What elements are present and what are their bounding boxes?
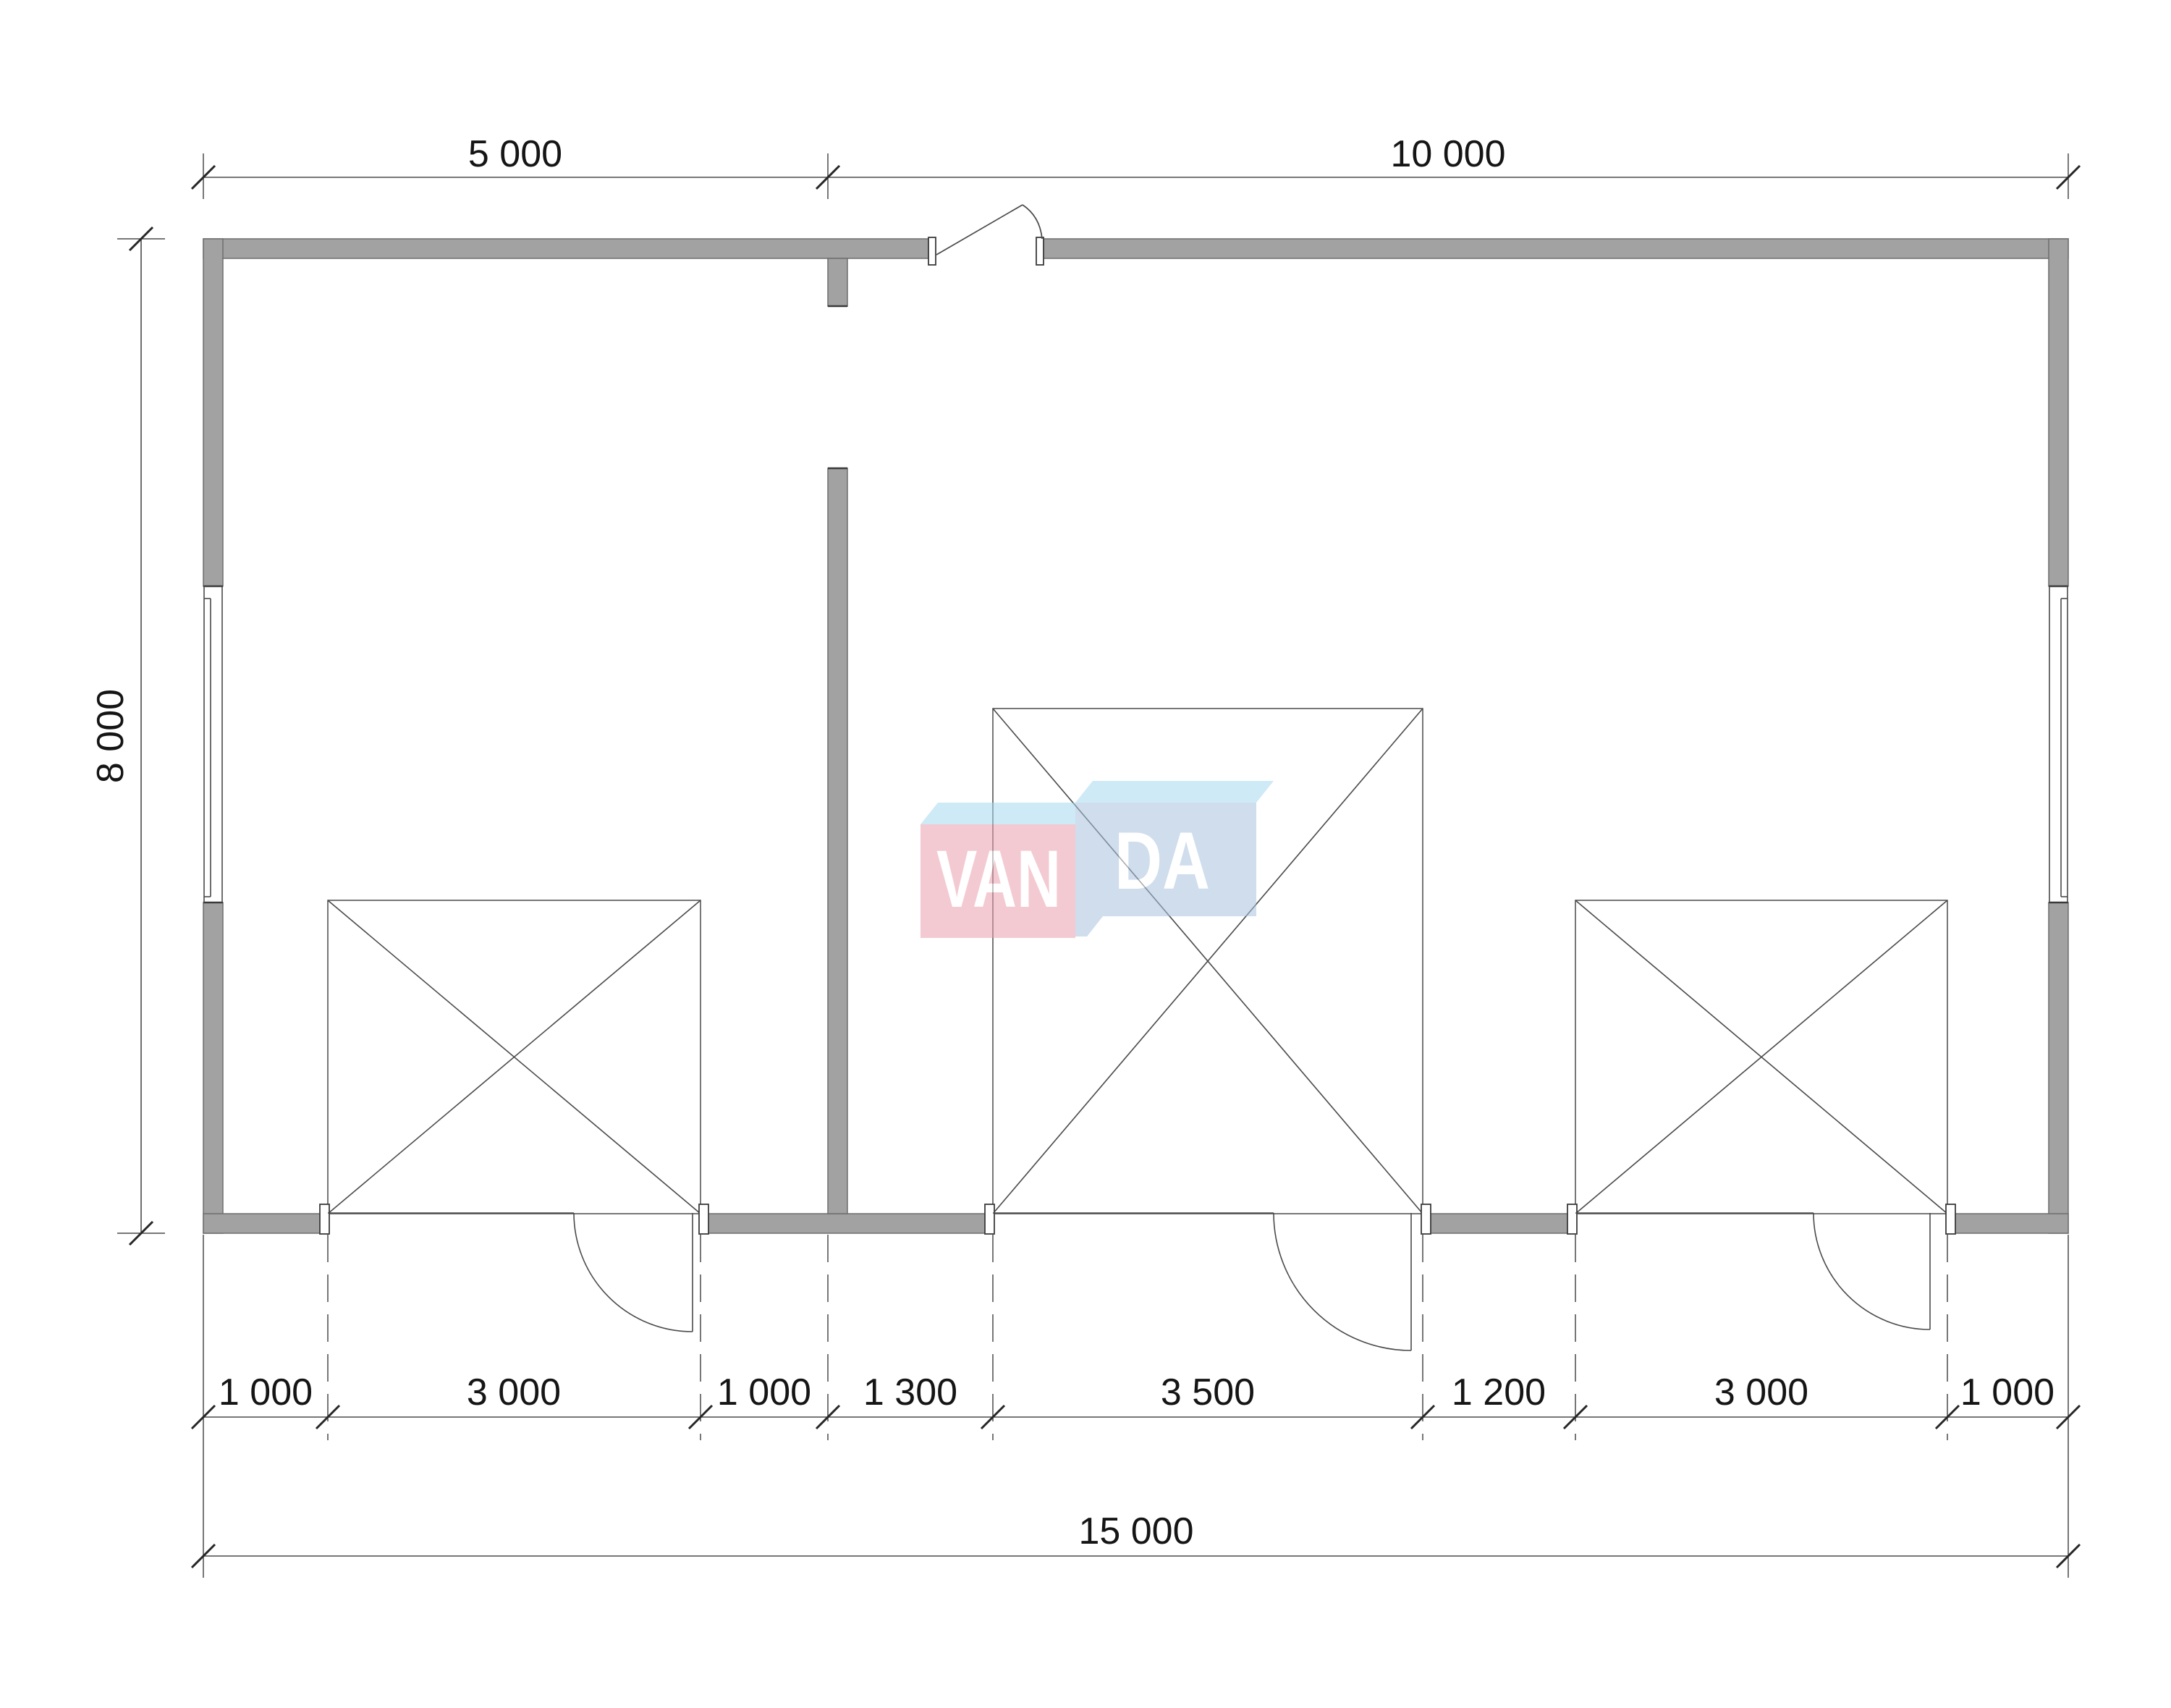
floor-plan-drawing: 5 000 10 000 8 000 1 000 3 000 1 000 1 3… [0, 0, 2171, 1708]
garage-jamb [1946, 1204, 1955, 1234]
wall-bottom-segment-2 [701, 1214, 993, 1233]
wall-bottom-segment-3 [1423, 1214, 1575, 1233]
window-right [2049, 586, 2068, 902]
wall-left-lower-segment [203, 902, 223, 1233]
dim-label-bottom-7: 3 000 [1714, 1371, 1808, 1413]
wall-right-upper-segment [2049, 239, 2068, 586]
wall-left-upper-segment [203, 239, 223, 586]
watermark-text-da: DA [1114, 816, 1210, 906]
extension-lines-dashed [328, 1235, 1947, 1440]
wall-bottom-segment-4 [1947, 1214, 2068, 1233]
garage-jamb [1567, 1204, 1577, 1234]
floor-plan-sheet: 5 000 10 000 8 000 1 000 3 000 1 000 1 3… [0, 0, 2171, 1708]
wall-top-right-segment [1044, 239, 2068, 258]
watermark-text-van: VAN [936, 834, 1061, 924]
entry-door-top [928, 205, 1044, 265]
wicket-swing-arc [574, 1213, 693, 1332]
garage-jamb [1421, 1204, 1431, 1234]
interior-wall-stub [828, 258, 847, 306]
dim-label-bottom-6: 1 200 [1452, 1371, 1546, 1413]
dim-label-top-left: 5 000 [468, 133, 562, 175]
garage-door-1 [320, 900, 708, 1332]
walls [203, 239, 2068, 1233]
wall-bottom-segment-1 [203, 1214, 328, 1233]
wicket-swing-arc [1274, 1213, 1411, 1350]
dimension-left: 8 000 [90, 227, 153, 1245]
vanda-watermark-logo: VAN DA [921, 781, 1274, 938]
dim-label-bottom-5: 3 500 [1161, 1371, 1255, 1413]
door-jamb [928, 237, 936, 265]
garage-jamb [699, 1204, 708, 1234]
wall-top-left-segment [203, 239, 928, 258]
dim-label-bottom-1: 1 000 [219, 1371, 313, 1413]
dimension-top: 5 000 10 000 [192, 133, 2080, 189]
door-swing-arc [1023, 205, 1042, 239]
dim-label-overall: 15 000 [1078, 1510, 1193, 1552]
watermark-right-top-face [1075, 781, 1274, 803]
dim-label-bottom-8: 1 000 [1960, 1371, 2054, 1413]
garage-jamb [320, 1204, 329, 1234]
interior-wall-main [828, 468, 847, 1214]
watermark-left-top-face [921, 803, 1093, 824]
dim-label-bottom-2: 3 000 [467, 1371, 561, 1413]
dim-label-bottom-4: 1 300 [863, 1371, 957, 1413]
dim-label-left: 8 000 [90, 689, 132, 783]
dimension-bottom-row: 1 000 3 000 1 000 1 300 3 500 1 200 3 00… [192, 1371, 2080, 1429]
dimension-overall: 15 000 [192, 1510, 2080, 1568]
dim-label-bottom-3: 1 000 [717, 1371, 811, 1413]
wicket-swing-arc [1814, 1213, 1930, 1329]
wall-right-lower-segment [2049, 902, 2068, 1233]
door-jamb [1036, 237, 1044, 265]
dim-label-top-right: 10 000 [1390, 133, 1505, 175]
window-left [204, 586, 222, 902]
door-leaf [936, 205, 1023, 255]
garage-door-3 [1567, 900, 1955, 1329]
garage-jamb [985, 1204, 994, 1234]
